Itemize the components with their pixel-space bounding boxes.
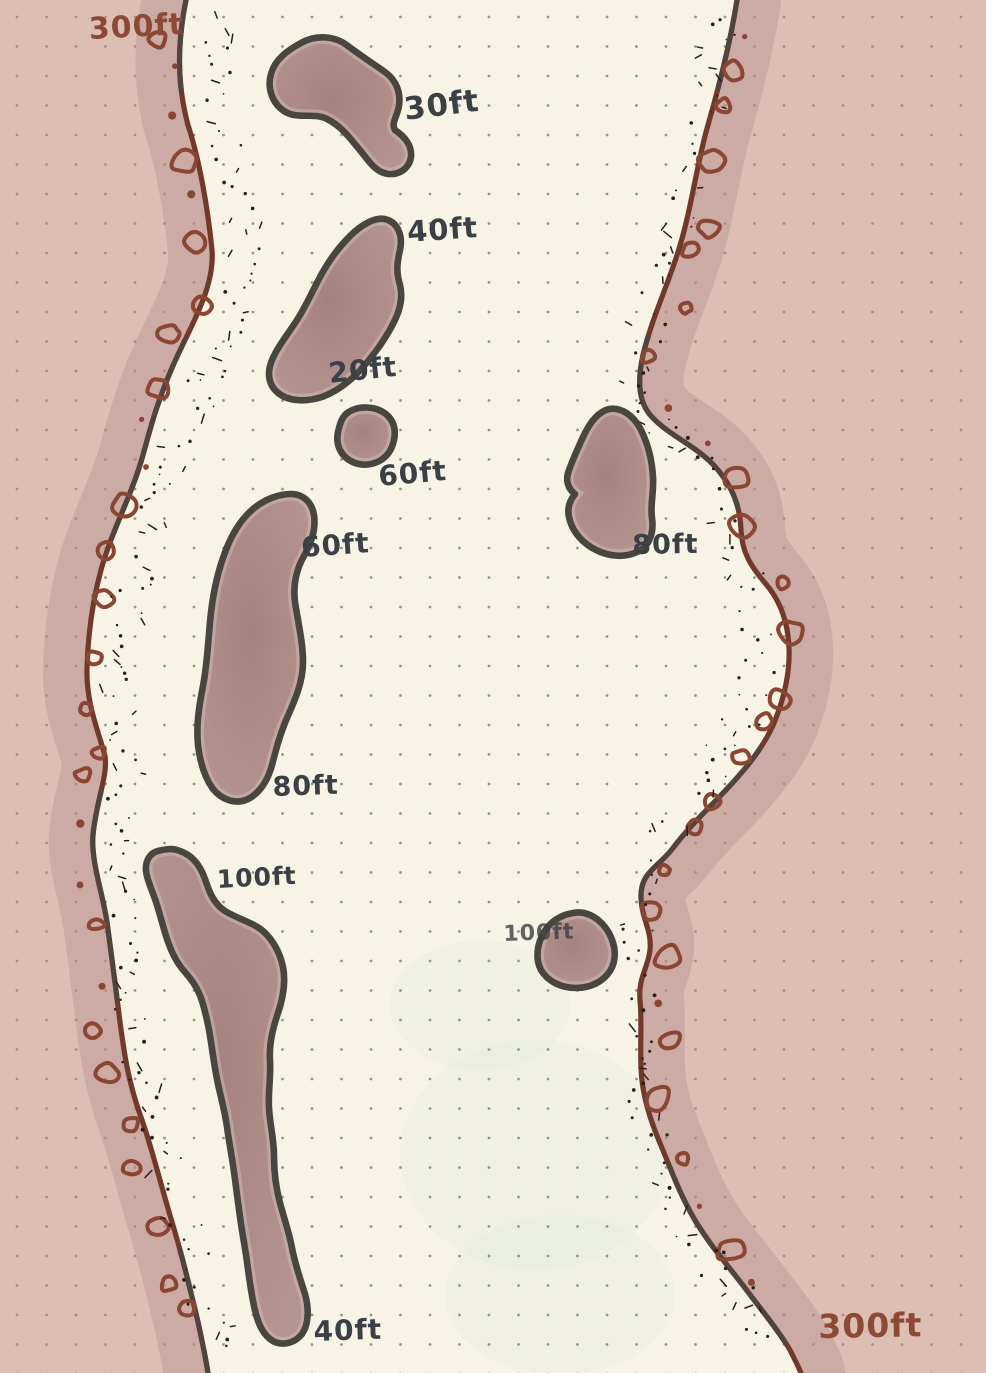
stipple-dot <box>689 121 693 125</box>
stipple-dot <box>215 347 217 349</box>
stipple-dot <box>648 1050 651 1053</box>
stipple-dot <box>637 410 640 413</box>
stipple-dot <box>707 779 711 783</box>
stipple-dot <box>230 345 232 347</box>
stipple-dot <box>159 466 162 469</box>
stipple-dot <box>718 487 722 491</box>
stipple-dot <box>169 483 171 485</box>
stipple-dot <box>110 843 113 846</box>
stipple-dot <box>183 1238 186 1241</box>
stipple-dot <box>676 1236 678 1238</box>
stipple-dot <box>166 1188 169 1191</box>
stipple-dot <box>129 942 132 945</box>
stipple-dot <box>639 402 641 404</box>
stipple-dash <box>760 1307 761 1311</box>
stipple-dot <box>655 264 658 267</box>
stipple-dot <box>622 928 625 931</box>
stipple-dot <box>106 797 110 801</box>
stipple-dot <box>228 71 232 75</box>
stipple-dot <box>628 1100 631 1103</box>
stipple-dash <box>230 1326 235 1327</box>
stipple-dot <box>765 694 767 696</box>
stipple-dot <box>693 152 696 155</box>
stipple-dot <box>740 628 744 632</box>
stipple-dot <box>632 1088 636 1092</box>
stipple-dot <box>718 18 721 21</box>
stipple-dot <box>119 589 122 592</box>
map-canvas <box>0 0 986 1373</box>
stipple-dot <box>745 708 748 711</box>
stipple-dot <box>241 319 244 322</box>
stipple-dot <box>648 892 651 895</box>
stipple-dot <box>233 302 236 305</box>
stipple-dot <box>711 22 715 26</box>
stipple-dot <box>652 930 654 932</box>
stipple-dot <box>208 55 210 57</box>
stipple-dot <box>756 638 760 642</box>
stipple-dot <box>761 652 763 654</box>
stipple-dot <box>650 859 652 861</box>
stipple-dot <box>641 371 645 375</box>
stipple-dot <box>137 1071 140 1074</box>
stipple-dot <box>150 577 154 581</box>
pebble-dot <box>654 999 662 1007</box>
stipple-dot <box>715 1249 719 1253</box>
stipple-dot <box>634 351 637 354</box>
stipple-dot <box>755 1331 758 1334</box>
stipple-dash <box>688 1235 697 1236</box>
stipple-dot <box>201 1224 203 1226</box>
stipple-dot <box>758 723 760 725</box>
stipple-dot <box>225 1338 229 1342</box>
stipple-dot <box>208 397 211 400</box>
stipple-dot <box>751 1286 754 1289</box>
stipple-dot <box>142 1040 146 1044</box>
stipple-dot <box>250 273 252 275</box>
stipple-dot <box>244 192 247 195</box>
stipple-dot <box>627 957 630 960</box>
island-60ft-small <box>337 407 394 464</box>
stipple-dot <box>210 63 213 66</box>
stipple-dot <box>726 39 728 41</box>
stipple-dot <box>119 999 121 1001</box>
stipple-dot <box>223 1322 225 1324</box>
stipple-dot <box>222 181 226 185</box>
pebble-dot <box>99 983 106 990</box>
stipple-dot <box>251 207 255 211</box>
stipple-dot <box>155 1096 159 1100</box>
stipple-dot <box>125 678 128 681</box>
stipple-dot <box>772 671 775 674</box>
stipple-dot <box>733 519 736 522</box>
stipple-dot <box>159 473 161 475</box>
stipple-dot <box>745 1328 748 1331</box>
stipple-dot <box>659 340 662 343</box>
pebble-dot <box>76 819 84 827</box>
stipple-dot <box>112 914 116 918</box>
stipple-dot <box>752 588 755 591</box>
stipple-dot <box>128 817 130 819</box>
stipple-dot <box>705 744 707 746</box>
stipple-dot <box>668 1186 672 1190</box>
stipple-dot <box>193 1286 196 1289</box>
stipple-dot <box>696 455 700 459</box>
pebble-dot <box>172 63 178 69</box>
stipple-dot <box>644 1063 646 1065</box>
stipple-dot <box>110 595 113 598</box>
stipple-dot <box>187 379 190 382</box>
stipple-dot <box>739 610 741 612</box>
stipple-dot <box>115 793 118 796</box>
stipple-dot <box>196 407 199 410</box>
stipple-dot <box>671 196 675 200</box>
stipple-dot <box>653 313 655 315</box>
stipple-dot <box>151 1115 155 1119</box>
stipple-dot <box>128 1078 130 1080</box>
pebble-dot <box>665 404 673 412</box>
hand-drawn-depth-map: 300ft 30ft 40ft 20ft 60ft 60ft 80ft 80ft… <box>0 0 986 1373</box>
stipple-dot <box>711 758 715 762</box>
stipple-dot <box>231 185 234 188</box>
pebble-dot <box>742 34 747 39</box>
stipple-dash <box>697 47 702 48</box>
stipple-dot <box>124 890 127 893</box>
stipple-dot <box>691 143 693 145</box>
stipple-dot <box>188 440 191 443</box>
stipple-dash <box>157 446 164 447</box>
pebble-dot <box>697 1204 702 1209</box>
stipple-dot <box>120 645 124 649</box>
stipple-dot <box>693 217 695 219</box>
stipple-dot <box>653 993 657 997</box>
stipple-dot <box>668 419 670 421</box>
stipple-dot <box>740 586 742 588</box>
stipple-dot <box>153 491 156 494</box>
stipple-dot <box>223 290 227 294</box>
stipple-dot <box>113 695 115 697</box>
stipple-dot <box>150 584 152 586</box>
stipple-dot <box>116 624 118 626</box>
stipple-dot <box>668 262 671 265</box>
stipple-dot <box>221 375 224 378</box>
stipple-dot <box>182 1278 186 1282</box>
stipple-dot <box>114 722 118 726</box>
stipple-dot <box>240 144 243 147</box>
stipple-dot <box>144 1018 146 1020</box>
stipple-dot <box>675 426 678 429</box>
stipple-dot <box>661 820 664 823</box>
pebble-dot <box>139 417 144 422</box>
stipple-dot <box>712 467 715 470</box>
stipple-dot <box>711 457 714 460</box>
stipple-dot <box>643 974 646 977</box>
stipple-dash <box>659 1113 660 1120</box>
pebble-dot <box>77 882 84 889</box>
stipple-dash <box>246 230 247 234</box>
stipple-dot <box>134 917 136 919</box>
stipple-dot <box>218 130 220 132</box>
stipple-dot <box>226 46 229 49</box>
stipple-dot <box>167 1183 169 1185</box>
stipple-dot <box>641 291 644 294</box>
stipple-dot <box>641 1057 644 1060</box>
stipple-dot <box>721 718 723 720</box>
stipple-dot <box>119 784 122 787</box>
stipple-dot <box>134 555 138 559</box>
stipple-dot <box>635 1035 638 1038</box>
stipple-dot <box>224 370 227 373</box>
stipple-dot <box>766 1335 769 1338</box>
stipple-dot <box>207 1307 209 1309</box>
stipple-dot <box>249 279 251 281</box>
stipple-dot <box>166 1142 168 1144</box>
pebble-dot <box>143 464 149 470</box>
stipple-dot <box>663 1161 666 1164</box>
stipple-dot <box>770 633 772 635</box>
stipple-dot <box>722 1250 726 1254</box>
stipple-dot <box>651 874 653 876</box>
pebble-dot <box>748 1279 755 1286</box>
stipple-dot <box>675 189 677 191</box>
stipple-dot <box>125 992 127 994</box>
stipple-dot <box>724 1267 728 1271</box>
stipple-dot <box>650 1040 653 1043</box>
stipple-dot <box>187 1303 190 1306</box>
stipple-dot <box>200 379 202 381</box>
stipple-dot <box>649 830 651 832</box>
stipple-dot <box>687 1243 691 1247</box>
stipple-dot <box>258 247 261 250</box>
stipple-dot <box>145 1081 148 1084</box>
stipple-dot <box>716 95 718 97</box>
stipple-dot <box>122 852 124 854</box>
pebble-dot <box>705 441 711 447</box>
stipple-dot <box>211 145 214 148</box>
stipple-dot <box>647 1148 649 1150</box>
stipple-dot <box>140 505 143 508</box>
stipple-dot <box>738 694 740 696</box>
stipple-dot <box>643 391 646 394</box>
stipple-dot <box>662 253 666 257</box>
stipple-dot <box>121 749 124 752</box>
stipple-dot <box>207 1252 210 1255</box>
stipple-dot <box>141 1128 145 1132</box>
stipple-dot <box>253 263 256 266</box>
stipple-dot <box>660 1173 662 1175</box>
stipple-dot <box>186 1269 188 1271</box>
stipple-dot <box>239 331 242 334</box>
stipple-dash <box>639 1068 646 1069</box>
stipple-dot <box>214 158 218 162</box>
stipple-dot <box>120 829 124 833</box>
stipple-dot <box>153 483 156 486</box>
stipple-dot <box>109 739 111 741</box>
stipple-dot <box>737 676 740 679</box>
stipple-dot <box>121 1061 123 1063</box>
stipple-dot <box>225 1345 228 1348</box>
stipple-dot <box>690 226 692 228</box>
stipple-dot <box>134 759 137 762</box>
stipple-dash <box>243 312 248 313</box>
stipple-dot <box>637 384 641 388</box>
stipple-dot <box>644 903 647 906</box>
stipple-dot <box>637 949 640 952</box>
stipple-dot <box>150 1136 154 1140</box>
pebble-dot <box>187 190 195 198</box>
stipple-dot <box>669 1196 671 1198</box>
stipple-dot <box>243 286 245 288</box>
stipple-dot <box>697 792 700 795</box>
stipple-dot <box>141 612 143 614</box>
stipple-dot <box>114 823 117 826</box>
stipple-dot <box>623 941 626 944</box>
stipple-dot <box>733 34 735 36</box>
stipple-dot <box>641 1008 645 1012</box>
stipple-dot <box>213 405 215 407</box>
stipple-dash <box>707 523 714 524</box>
stipple-dot <box>119 966 123 970</box>
stipple-dot <box>205 99 208 102</box>
stipple-dot <box>119 634 123 638</box>
stipple-dot <box>700 1274 703 1277</box>
stipple-dot <box>720 507 723 510</box>
stipple-dot <box>725 776 727 778</box>
stipple-dot <box>223 93 225 95</box>
stipple-dot <box>734 745 736 747</box>
stipple-dot <box>123 672 126 675</box>
stipple-dot <box>141 587 144 590</box>
stipple-dot <box>663 323 667 327</box>
stipple-dot <box>665 1133 668 1136</box>
stipple-dot <box>762 572 764 574</box>
stipple-dot <box>630 997 633 1000</box>
stipple-dot <box>178 445 181 448</box>
stipple-dot <box>168 1223 172 1227</box>
stipple-dot <box>748 725 751 728</box>
stipple-dot <box>649 1133 653 1137</box>
stipple-dot <box>668 274 670 276</box>
stipple-dot <box>641 1082 645 1086</box>
stipple-dot <box>187 1248 189 1250</box>
stipple-dot <box>204 41 207 44</box>
stipple-dot <box>710 111 712 113</box>
stipple-dot <box>180 1157 182 1159</box>
stipple-dot <box>744 659 747 662</box>
stipple-dot <box>705 771 708 774</box>
stipple-dot <box>724 748 727 751</box>
stipple-dot <box>134 959 138 963</box>
stipple-dot <box>133 899 135 901</box>
stipple-dot <box>120 666 122 668</box>
stipple-dot <box>664 1208 667 1211</box>
stipple-dot <box>136 952 138 954</box>
stipple-dot <box>731 546 734 549</box>
pebble-dot <box>168 111 176 119</box>
stipple-dot <box>114 1008 117 1011</box>
stipple-dot <box>631 1116 634 1119</box>
stipple-dot <box>686 436 690 440</box>
stipple-dot <box>648 432 650 434</box>
island-100ft-southeast <box>537 912 614 988</box>
